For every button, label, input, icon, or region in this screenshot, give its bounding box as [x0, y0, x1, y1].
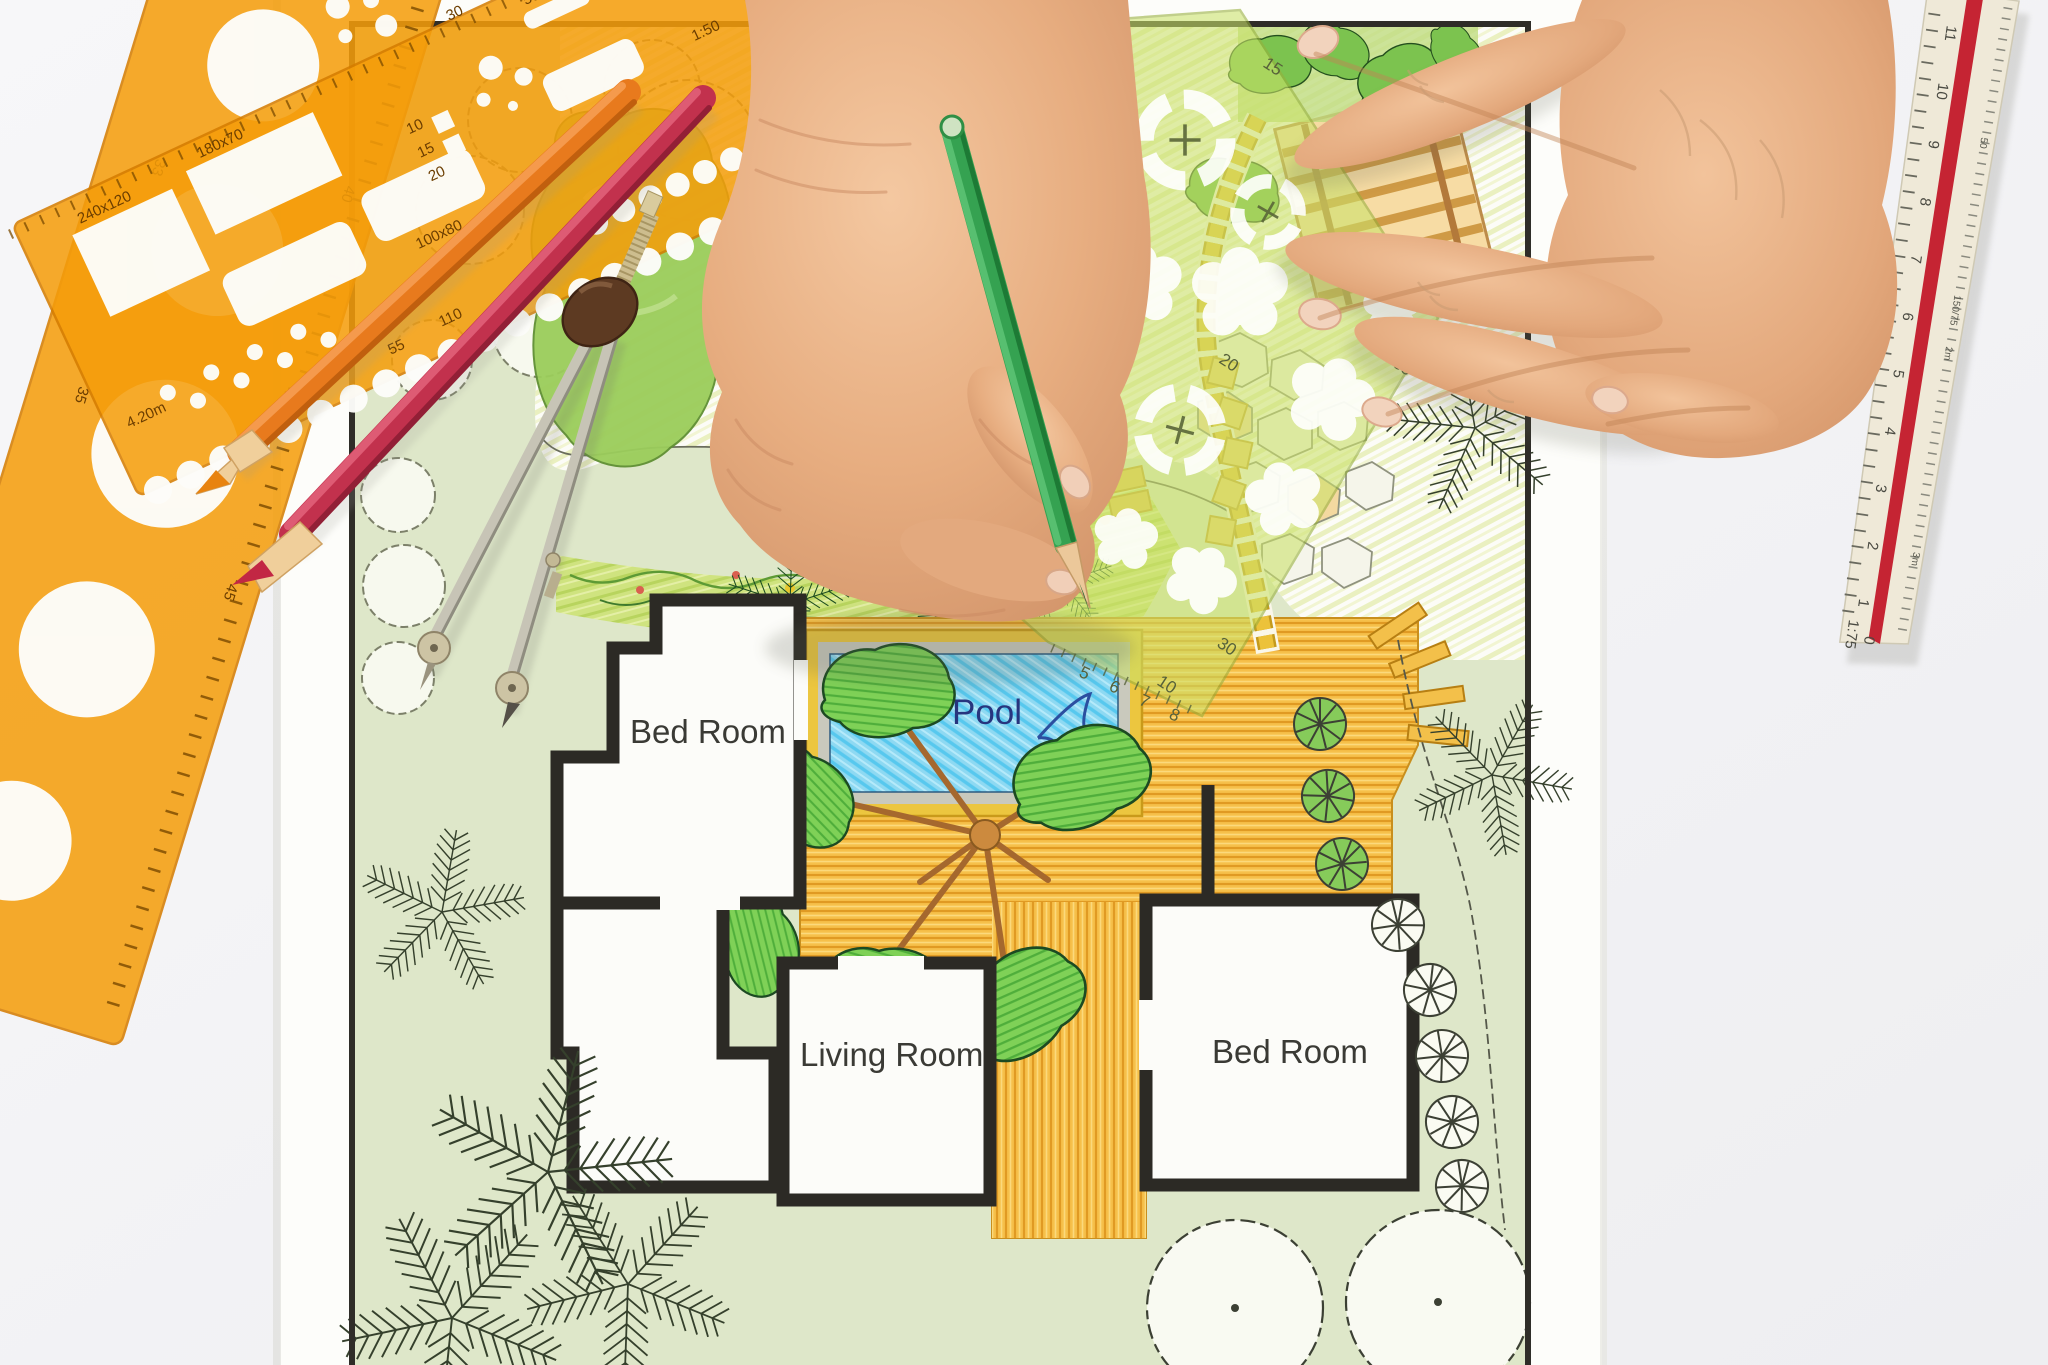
living-room [783, 963, 990, 1200]
pool-label: Pool [952, 693, 1022, 732]
scene: Pool [0, 0, 2048, 1365]
resting-hand [1269, 0, 1898, 479]
bedroom2-label: Bed Room [1212, 1033, 1368, 1070]
ruler-side-label: 50 [1977, 137, 1990, 150]
photo-landscape-architect-plan: Pool [0, 0, 2048, 1365]
ruler-side-label: 2m [1941, 346, 1954, 361]
bedroom1-label: Bed Room [630, 713, 786, 750]
ruler-number: 10 [1932, 82, 1951, 101]
living-room-label: Living Room [800, 1036, 983, 1073]
ruler-side-label: 3m [1909, 551, 1922, 566]
ruler-number: 11 [1941, 25, 1960, 43]
